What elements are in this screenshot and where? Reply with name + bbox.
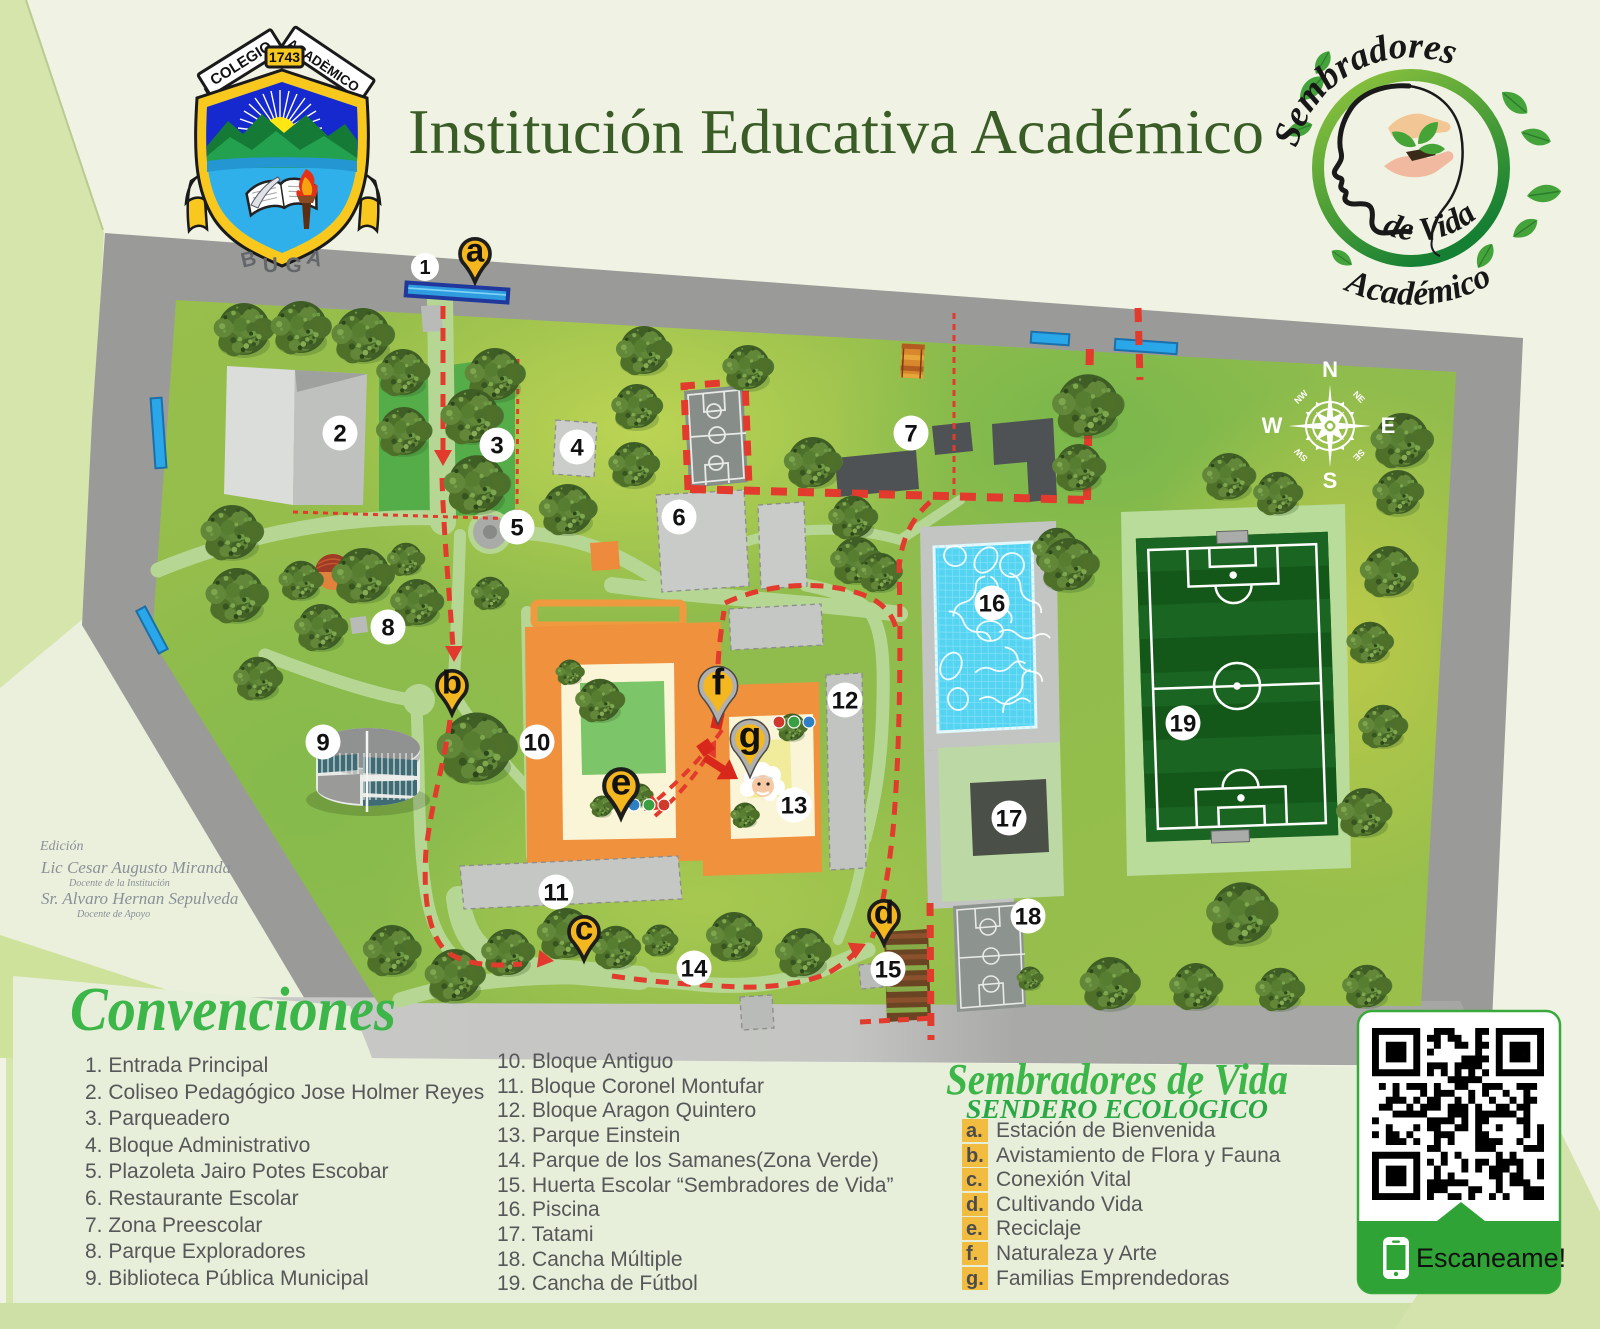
- svg-text:11: 11: [543, 879, 568, 906]
- svg-text:Cultivando Vida: Cultivando Vida: [996, 1193, 1143, 1216]
- svg-text:15. Huerta Escolar “Sembradore: 15. Huerta Escolar “Sembradores de Vida”: [497, 1174, 893, 1197]
- svg-text:Avistamiento de Flora y Fauna: Avistamiento de Flora y Fauna: [996, 1144, 1281, 1167]
- svg-text:e.: e.: [966, 1218, 983, 1240]
- svg-text:Estación de Bienvenida: Estación de Bienvenida: [996, 1119, 1216, 1142]
- svg-text:1. Entrada Principal: 1. Entrada Principal: [85, 1054, 268, 1077]
- svg-text:Docente de la Institución: Docente de la Institución: [68, 878, 170, 889]
- svg-text:2: 2: [333, 420, 346, 447]
- svg-text:f: f: [712, 662, 725, 703]
- svg-text:9: 9: [316, 729, 329, 756]
- svg-text:6. Restaurante Escolar: 6. Restaurante Escolar: [85, 1187, 299, 1210]
- svg-text:d: d: [874, 894, 894, 931]
- svg-text:g: g: [739, 715, 762, 756]
- svg-text:G: G: [284, 253, 303, 278]
- svg-text:18: 18: [1015, 903, 1042, 930]
- svg-text:9. Biblioteca Pública Municipa: 9. Biblioteca Pública Municipal: [85, 1267, 369, 1290]
- svg-text:16. Piscina: 16. Piscina: [497, 1198, 600, 1221]
- svg-text:12: 12: [832, 687, 859, 714]
- svg-text:1: 1: [419, 257, 430, 279]
- svg-text:4: 4: [570, 434, 584, 461]
- svg-text:14. Parque de los Samanes(Zona: 14. Parque de los Samanes(Zona Verde): [497, 1149, 879, 1172]
- svg-text:Conexión Vital: Conexión Vital: [996, 1168, 1131, 1191]
- svg-text:b: b: [442, 664, 462, 701]
- svg-text:13: 13: [781, 792, 808, 819]
- svg-text:19. Cancha de Fútbol: 19. Cancha de Fútbol: [497, 1272, 698, 1295]
- svg-text:e: e: [611, 762, 632, 803]
- svg-text:c.: c.: [966, 1169, 983, 1191]
- svg-text:17: 17: [996, 805, 1023, 832]
- svg-text:Institución Educativa Académic: Institución Educativa Académico: [408, 96, 1264, 167]
- svg-text:7. Zona Preescolar: 7. Zona Preescolar: [85, 1214, 262, 1237]
- svg-text:Edición: Edición: [39, 839, 84, 854]
- svg-text:1743: 1743: [269, 49, 300, 65]
- svg-text:a: a: [466, 232, 485, 269]
- svg-text:17. Tatami: 17. Tatami: [497, 1223, 594, 1246]
- svg-text:Naturaleza y Arte: Naturaleza y Arte: [996, 1242, 1157, 1265]
- svg-text:5: 5: [510, 514, 523, 541]
- svg-text:U: U: [262, 254, 279, 278]
- svg-text:10: 10: [524, 729, 551, 756]
- svg-text:15: 15: [875, 956, 902, 983]
- svg-text:Convenciones: Convenciones: [70, 976, 396, 1044]
- svg-text:19: 19: [1170, 710, 1197, 737]
- svg-text:7: 7: [904, 420, 917, 447]
- svg-text:14: 14: [681, 955, 708, 982]
- svg-text:11. Bloque Coronel Montufar: 11. Bloque Coronel Montufar: [497, 1075, 764, 1098]
- svg-text:W: W: [1262, 413, 1283, 438]
- svg-text:Familias Emprendedoras: Familias Emprendedoras: [996, 1267, 1229, 1290]
- svg-text:S: S: [1323, 468, 1338, 493]
- svg-text:Sr. Alvaro Hernan Sepulveda: Sr. Alvaro Hernan Sepulveda: [41, 889, 238, 908]
- svg-text:a.: a.: [966, 1120, 983, 1142]
- svg-text:8. Parque Exploradores: 8. Parque Exploradores: [85, 1240, 306, 1263]
- svg-text:E: E: [1381, 413, 1396, 438]
- svg-text:Docente de Apoyo: Docente de Apoyo: [76, 909, 150, 920]
- svg-text:g.: g.: [966, 1268, 984, 1290]
- svg-text:3: 3: [490, 432, 503, 459]
- svg-text:c: c: [575, 910, 593, 947]
- svg-text:Lic Cesar Augusto Miranda: Lic Cesar Augusto Miranda: [40, 858, 231, 877]
- svg-text:Escaneame!: Escaneame!: [1416, 1243, 1566, 1273]
- svg-text:12. Bloque Aragon Quintero: 12. Bloque Aragon Quintero: [497, 1099, 756, 1122]
- svg-text:10. Bloque Antiguo: 10. Bloque Antiguo: [497, 1050, 673, 1073]
- svg-text:8: 8: [381, 614, 394, 641]
- svg-text:4. Bloque Administrativo: 4. Bloque Administrativo: [85, 1134, 310, 1157]
- svg-text:3. Parqueadero: 3. Parqueadero: [85, 1107, 230, 1130]
- svg-text:f.: f.: [966, 1243, 978, 1265]
- svg-text:Reciclaje: Reciclaje: [996, 1217, 1081, 1240]
- svg-text:13. Parque Einstein: 13. Parque Einstein: [497, 1124, 680, 1147]
- svg-text:6: 6: [672, 504, 685, 531]
- svg-text:2. Coliseo Pedagógico Jose Hol: 2. Coliseo Pedagógico Jose Holmer Reyes: [85, 1081, 484, 1104]
- svg-text:b.: b.: [966, 1145, 984, 1167]
- svg-text:18. Cancha Múltiple: 18. Cancha Múltiple: [497, 1248, 683, 1271]
- svg-text:N: N: [1322, 357, 1338, 382]
- svg-text:5. Plazoleta Jairo Potes Escob: 5. Plazoleta Jairo Potes Escobar: [85, 1160, 389, 1183]
- svg-text:d.: d.: [966, 1194, 984, 1216]
- svg-text:16: 16: [979, 590, 1006, 617]
